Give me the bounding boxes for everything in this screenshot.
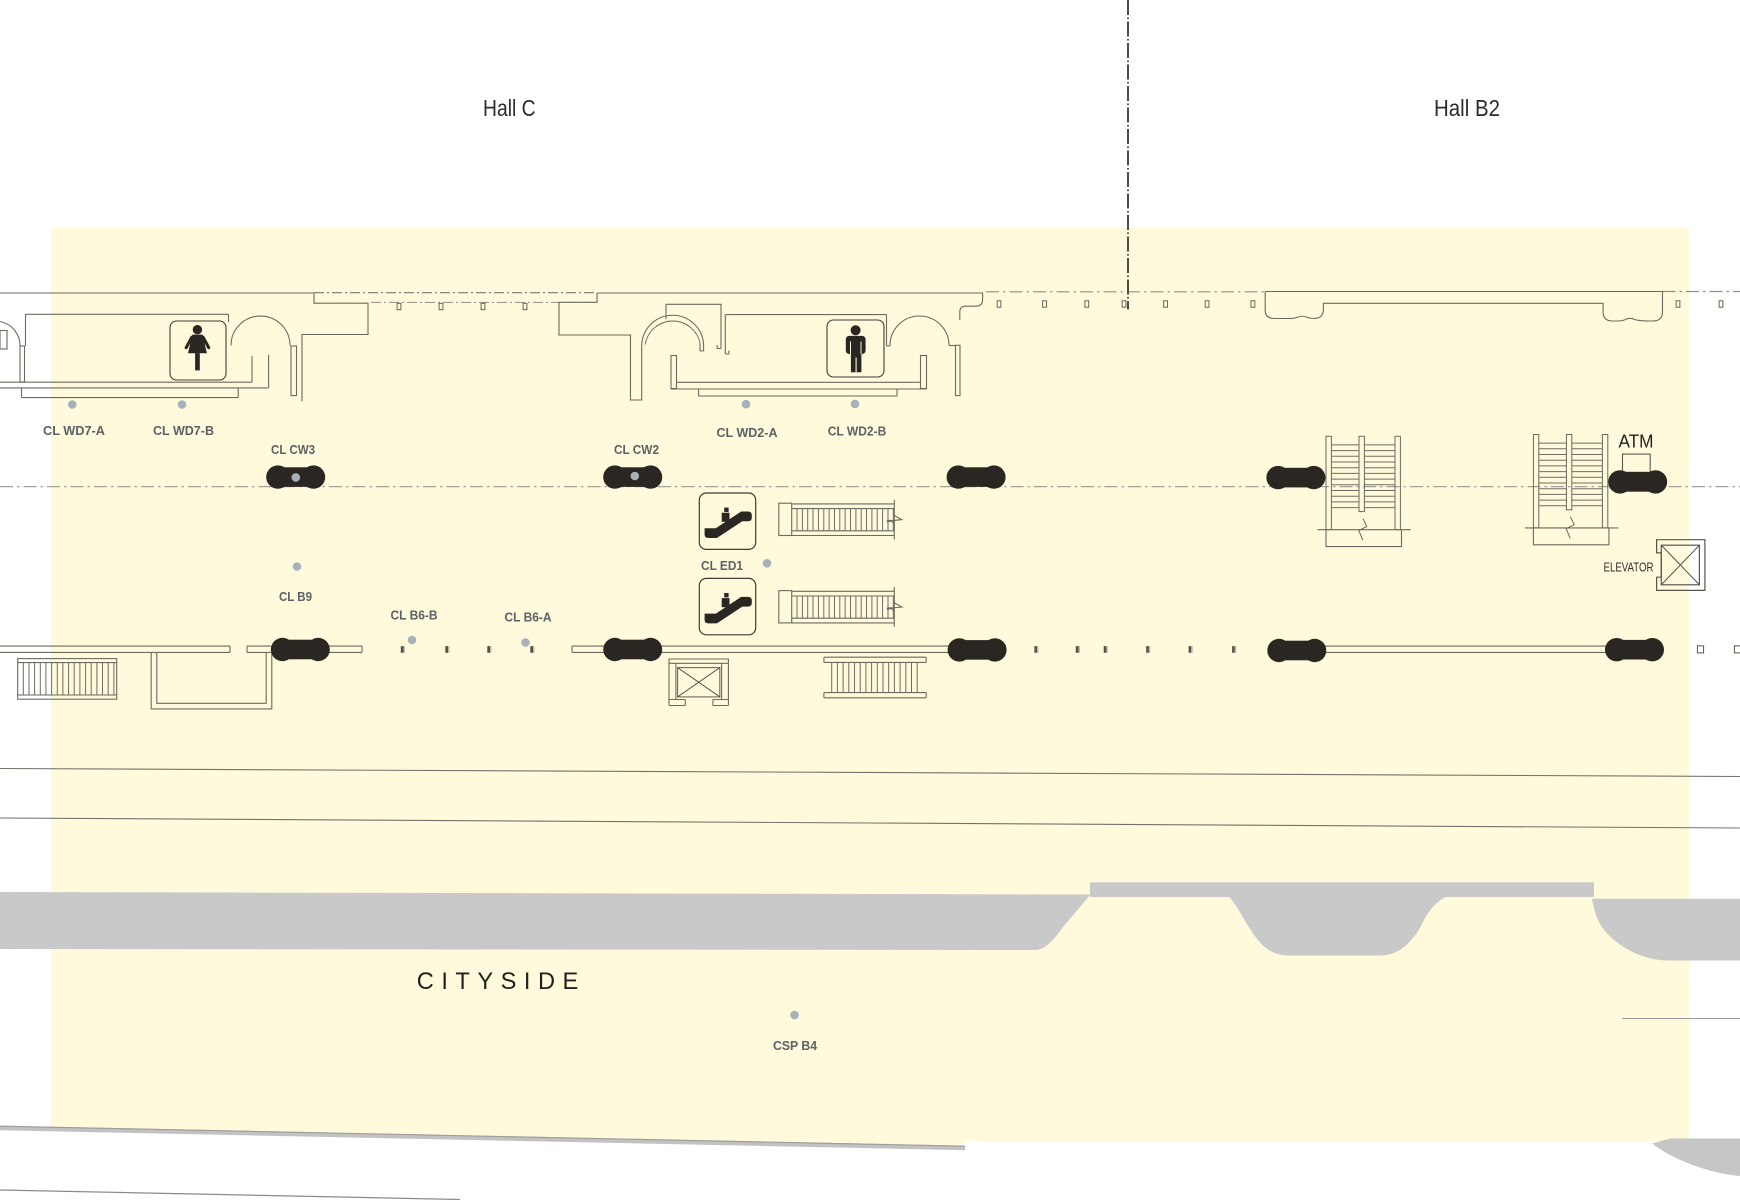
svg-text:CL B6-B: CL B6-B bbox=[391, 609, 438, 623]
svg-text:CL WD7-B: CL WD7-B bbox=[153, 424, 214, 438]
svg-text:Hall C: Hall C bbox=[483, 95, 536, 121]
svg-text:CL B9: CL B9 bbox=[279, 590, 312, 604]
svg-text:CL CW3: CL CW3 bbox=[271, 443, 315, 457]
svg-text:ELEVATOR: ELEVATOR bbox=[1604, 559, 1654, 574]
svg-text:CL B6-A: CL B6-A bbox=[505, 611, 552, 625]
svg-text:CL WD2-A: CL WD2-A bbox=[717, 426, 778, 440]
svg-text:CSP B4: CSP B4 bbox=[773, 1039, 817, 1053]
svg-text:CL WD2-B: CL WD2-B bbox=[828, 425, 887, 439]
svg-text:Hall B2: Hall B2 bbox=[1434, 95, 1500, 121]
svg-text:CL WD7-A: CL WD7-A bbox=[43, 424, 105, 438]
svg-text:ATM: ATM bbox=[1619, 431, 1654, 452]
svg-text:CL CW2: CL CW2 bbox=[614, 443, 659, 457]
svg-text:CL ED1: CL ED1 bbox=[701, 559, 743, 573]
